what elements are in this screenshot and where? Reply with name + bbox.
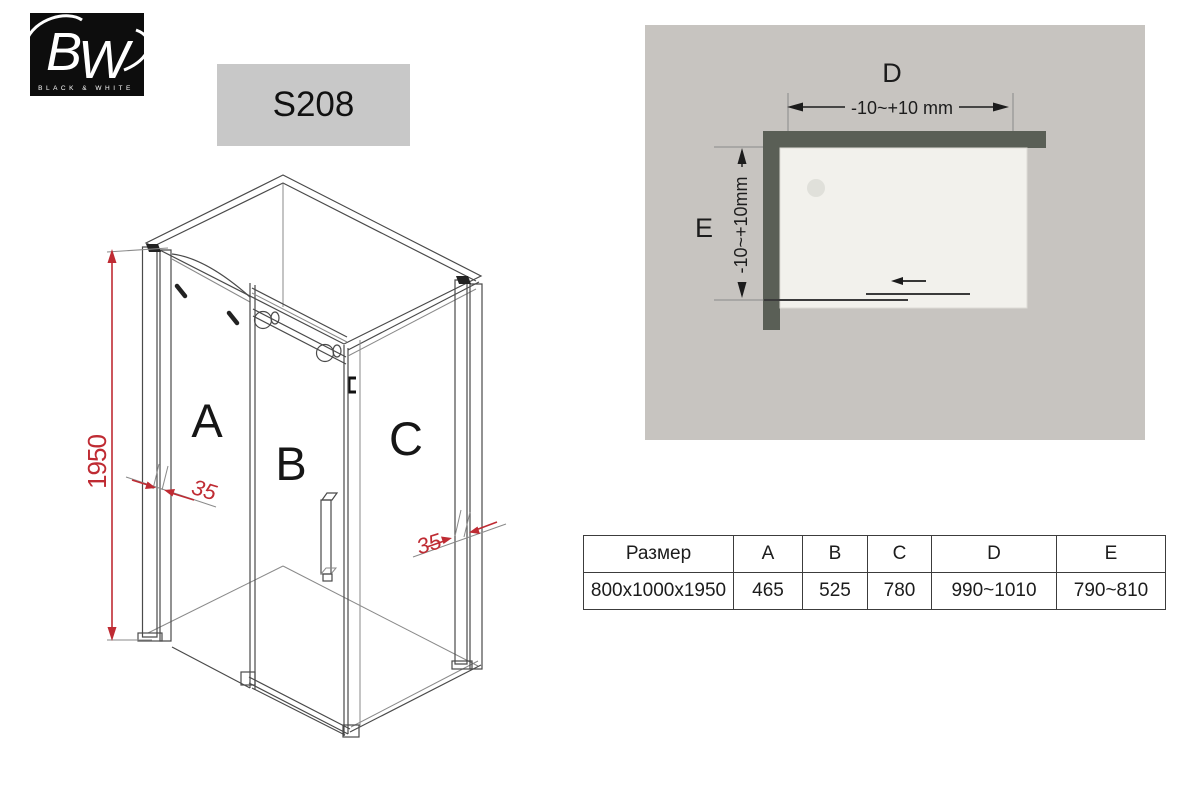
bottom-rail: [241, 672, 359, 737]
cell-c: 780: [868, 573, 932, 610]
left-adjust-dimension: 35: [126, 464, 220, 507]
col-header-size: Размер: [584, 536, 734, 573]
top-view-panel: D -10~+10 mm E: [645, 25, 1145, 440]
door-handle-icon: [321, 493, 337, 581]
cell-e: 790~810: [1057, 573, 1166, 610]
left-adjust-value: 35: [189, 474, 220, 505]
left-wall-profile: [138, 244, 171, 641]
depth-dim-letter: E: [695, 213, 713, 243]
width-dim-letter: D: [882, 58, 902, 88]
door-b: [250, 283, 356, 735]
corner-edge: [344, 345, 348, 736]
cell-d: 990~1010: [932, 573, 1057, 610]
depth-tolerance: -10~+10mm: [731, 176, 751, 273]
table-header-row: Размер A B C D E: [584, 536, 1166, 573]
panel-c-label: C: [389, 412, 423, 465]
col-header-d: D: [932, 536, 1057, 573]
panel-a-label: A: [191, 394, 223, 447]
table-row: 800x1000x1950 465 525 780 990~1010 790~8…: [584, 573, 1166, 610]
height-dimension: 1950: [82, 248, 168, 641]
spec-sheet: B W BLACK & WHITE S208: [0, 0, 1200, 800]
right-adjust-dimension: 35: [413, 510, 506, 559]
panel-b-label: B: [275, 437, 306, 490]
door-latch-icon: [349, 378, 356, 392]
col-header-c: C: [868, 536, 932, 573]
col-header-b: B: [803, 536, 868, 573]
cell-a: 465: [734, 573, 803, 610]
depth-dimension: -10~+10mm: [714, 147, 763, 300]
height-dim-value: 1950: [82, 435, 112, 489]
panel-a: [172, 254, 250, 688]
glass-hook-icon: [177, 286, 185, 296]
dimensions-table: Размер A B C D E 800x1000x1950 465 525 7…: [583, 535, 1166, 610]
wall-top: [763, 131, 1046, 148]
drain-icon: [807, 179, 825, 197]
shower-tray: [780, 148, 1027, 308]
roof-outline: [146, 175, 481, 344]
col-header-e: E: [1057, 536, 1166, 573]
glass-hook-icon: [229, 313, 237, 323]
cell-b: 525: [803, 573, 868, 610]
cell-size: 800x1000x1950: [584, 573, 734, 610]
right-wall-profile: [452, 276, 482, 669]
top-view-drawing: D -10~+10 mm E: [645, 25, 1145, 440]
col-header-a: A: [734, 536, 803, 573]
spec-table: Размер A B C D E 800x1000x1950 465 525 7…: [583, 535, 1166, 610]
width-tolerance: -10~+10 mm: [851, 98, 953, 118]
